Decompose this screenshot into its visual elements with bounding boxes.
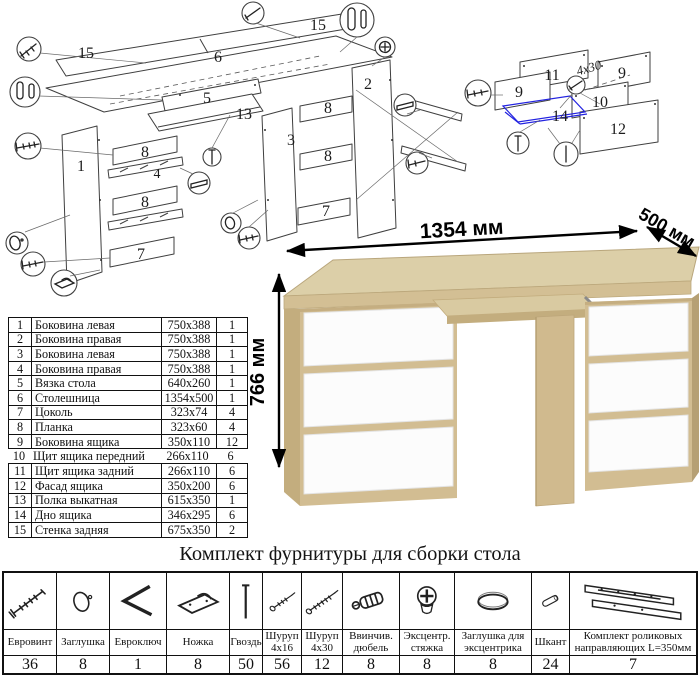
part-number-label: 4 xyxy=(154,167,161,182)
hw-icon-cell xyxy=(4,573,56,629)
hardware-kit-title: Комплект фурнитуры для сборки стола xyxy=(0,543,700,566)
right-pedestal-side xyxy=(692,293,699,482)
part-number-label: 12 xyxy=(610,121,626,138)
hw-icon-cell xyxy=(57,573,109,629)
part-name: Боковина левая xyxy=(31,347,161,361)
hw-qty: 8 xyxy=(167,656,229,673)
part-number-label: 9 xyxy=(515,84,523,101)
hw-qty: 1 xyxy=(110,656,166,673)
part-row: 10Щит ящика передний266x1106 xyxy=(8,449,248,463)
part-name: Боковина правая xyxy=(31,333,161,347)
hw-qty: 36 xyxy=(4,656,56,673)
part-num: 4 xyxy=(9,362,31,376)
part-name: Стенка задняя xyxy=(31,523,161,537)
hw-qty: 8 xyxy=(343,656,399,673)
nail-icon xyxy=(231,578,260,624)
part-row: 9Боковина ящика350x11012 xyxy=(9,434,247,449)
part-num: 13 xyxy=(9,494,31,508)
hw-name: Гвоздь xyxy=(230,629,262,656)
hw-icon-cell xyxy=(167,573,229,629)
hw-qty: 7 xyxy=(570,656,696,673)
hw-icon-cell xyxy=(110,573,166,629)
hw-icon-cell xyxy=(532,573,569,629)
hw-icon-cell xyxy=(230,573,262,629)
part-num: 12 xyxy=(9,479,31,493)
drawer-exploded-view: 11 9 9 10 12 14 4x30 xyxy=(465,50,658,166)
part-name: Боковина ящика xyxy=(31,435,161,449)
desk-body xyxy=(284,247,699,506)
part-number-label: 6 xyxy=(214,49,222,66)
hw-name: Ввинчив. дюбель xyxy=(343,629,399,656)
hw-name: Эксцентр. стяжка xyxy=(400,629,454,656)
center-post xyxy=(536,315,574,506)
hw-name: Ножка xyxy=(167,629,229,656)
part-size: 615x350 xyxy=(161,494,216,508)
part-number-label: 14 xyxy=(552,108,568,125)
hw-icon-cell xyxy=(263,573,301,629)
part-row: 2Боковина правая750x3881 xyxy=(9,332,247,347)
part-number-label: 3 xyxy=(287,132,295,149)
hw-qty: 8 xyxy=(57,656,109,673)
drawer-front xyxy=(589,303,688,356)
euroscrew-icon xyxy=(6,578,54,624)
part-number-label: 7 xyxy=(137,246,145,263)
dowel-screw-icon xyxy=(345,578,397,624)
hw-column: Гвоздь50 xyxy=(229,573,262,673)
hw-column: Шуруп 4x1656 xyxy=(262,573,301,673)
part-name: Щит ящика задний xyxy=(31,464,161,478)
part-number-label: 8 xyxy=(141,144,149,161)
part-qty: 1 xyxy=(216,347,247,361)
part-num: 10 xyxy=(8,449,30,463)
part-num: 9 xyxy=(9,435,31,449)
part-num: 8 xyxy=(9,420,31,434)
drawer-front xyxy=(304,367,453,427)
parts-table-upper: 1Боковина левая750x38812Боковина правая7… xyxy=(8,317,248,449)
hw-column: Евровинт36 xyxy=(4,573,56,673)
part-name: Столешница xyxy=(31,391,161,405)
part-qty: 6 xyxy=(216,508,247,522)
hw-column: Евроключ1 xyxy=(109,573,166,673)
part-number-label: 7 xyxy=(322,203,330,220)
part-name: Цоколь xyxy=(31,406,161,420)
part-row: 8Планка323x604 xyxy=(9,419,247,434)
part-size: 640x260 xyxy=(161,376,216,390)
part-row: 11Щит ящика задний266x1106 xyxy=(9,464,247,478)
part-num: 15 xyxy=(9,523,31,537)
part-num: 6 xyxy=(9,391,31,405)
hw-qty: 12 xyxy=(302,656,342,673)
hardware-kit-table: Евровинт36Заглушка8Евроключ1Ножка8Гвоздь… xyxy=(2,571,698,675)
part-num: 5 xyxy=(9,376,31,390)
part-name: Планка xyxy=(31,420,161,434)
cam-lock-icon xyxy=(402,578,452,624)
shkant-icon xyxy=(533,578,567,624)
part-num: 11 xyxy=(9,464,31,478)
hw-name: Евровинт xyxy=(4,629,56,656)
hw-name: Комплект роликовых направляющих L=350мм xyxy=(570,629,696,656)
part-number-label: 11 xyxy=(544,67,559,84)
dimension-height-label: 766 мм xyxy=(247,338,269,407)
hw-qty: 8 xyxy=(455,656,531,673)
part-qty: 4 xyxy=(216,406,247,420)
part-number-label: 15 xyxy=(310,17,326,34)
screw-long-icon xyxy=(304,578,341,624)
part-name: Боковина левая xyxy=(31,318,161,332)
parts-table-loose-row: 10Щит ящика передний266x1106 xyxy=(8,449,248,463)
part-size: 750x388 xyxy=(161,362,216,376)
part-size: 750x388 xyxy=(161,347,216,361)
drawer-front xyxy=(304,307,453,366)
hexkey-icon xyxy=(112,578,164,624)
part-row: 4Боковина правая750x3881 xyxy=(9,361,247,376)
hw-icon-cell xyxy=(570,573,696,629)
part-num: 2 xyxy=(9,333,31,347)
part-size: 1354x500 xyxy=(161,391,216,405)
hw-qty: 50 xyxy=(230,656,262,673)
hw-name: Евроключ xyxy=(110,629,166,656)
hw-icon-cell xyxy=(343,573,399,629)
part-name: Полка выкатная xyxy=(31,494,161,508)
rails-icon xyxy=(575,578,691,624)
part-number-label: 13 xyxy=(236,106,252,123)
part-size: 323x60 xyxy=(161,420,216,434)
part-name: Дно ящика xyxy=(31,508,161,522)
hw-column: Комплект роликовых направляющих L=350мм7 xyxy=(569,573,696,673)
part-number-label: 1 xyxy=(77,158,85,175)
part-number-label: 5 xyxy=(203,90,211,107)
part-qty: 1 xyxy=(216,391,247,405)
part-number-label: 10 xyxy=(592,94,608,111)
part-name: Фасад ящика xyxy=(31,479,161,493)
hw-column: Шкант24 xyxy=(531,573,569,673)
part-qty: 6 xyxy=(216,479,247,493)
part-number-label: 8 xyxy=(324,148,332,165)
part-qty: 12 xyxy=(216,435,247,449)
hw-name: Заглушка xyxy=(57,629,109,656)
part-num: 7 xyxy=(9,406,31,420)
hw-name: Шуруп 4x16 xyxy=(263,629,301,656)
hw-qty: 8 xyxy=(400,656,454,673)
part-qty: 2 xyxy=(216,523,247,537)
assembly-instruction-sheet: 15 6 15 1 8 4 8 7 5 13 3 2 8 8 7 xyxy=(0,0,700,677)
part-number-label: 8 xyxy=(324,100,332,117)
part-row: 7Цоколь323x744 xyxy=(9,405,247,420)
part-qty: 6 xyxy=(216,464,247,478)
drawer-front xyxy=(589,415,688,472)
hw-icon-cell xyxy=(455,573,531,629)
part-num: 14 xyxy=(9,508,31,522)
part-qty: 1 xyxy=(216,333,247,347)
desk-render: 1354 мм 500 мм 766 мм xyxy=(248,220,700,550)
hw-column: Шуруп 4x3012 xyxy=(301,573,342,673)
part-size: 750x388 xyxy=(161,318,216,332)
part-number-label: 8 xyxy=(141,194,149,211)
screw-short-icon xyxy=(265,578,300,624)
part-qty: 1 xyxy=(216,376,247,390)
cam-cap-icon xyxy=(458,578,528,624)
hw-column: Ножка8 xyxy=(166,573,229,673)
part-row: 13Полка выкатная615x3501 xyxy=(9,493,247,508)
parts-table-lower: 11Щит ящика задний266x110612Фасад ящика3… xyxy=(8,463,248,538)
part-row: 3Боковина левая750x3881 xyxy=(9,346,247,361)
hw-column: Ввинчив. дюбель8 xyxy=(342,573,399,673)
hw-column: Заглушка8 xyxy=(56,573,109,673)
part-name: Щит ящика передний xyxy=(30,449,160,463)
part-size: 346x295 xyxy=(161,508,216,522)
part-number-label: 2 xyxy=(364,76,372,93)
part-row: 12Фасад ящика350x2006 xyxy=(9,478,247,493)
part-qty: 1 xyxy=(216,318,247,332)
part-qty: 4 xyxy=(216,420,247,434)
part-size: 675x350 xyxy=(161,523,216,537)
hw-name: Заглушка для эксцентрика xyxy=(455,629,531,656)
drawer-front xyxy=(304,427,453,494)
part-number-label: 9 xyxy=(618,65,626,82)
hw-column: Эксцентр. стяжка8 xyxy=(399,573,454,673)
parts-list-table: 1Боковина левая750x38812Боковина правая7… xyxy=(8,317,248,538)
drawer-front xyxy=(589,359,688,413)
part-size: 750x388 xyxy=(161,333,216,347)
part-num: 3 xyxy=(9,347,31,361)
part-size: 266x110 xyxy=(161,464,216,478)
hw-name: Шкант xyxy=(532,629,569,656)
part-size: 350x200 xyxy=(161,479,216,493)
part-number-label: 15 xyxy=(78,45,94,62)
part-qty: 1 xyxy=(216,362,247,376)
left-pedestal-side xyxy=(284,309,300,506)
hw-icon-cell xyxy=(400,573,454,629)
foot-icon xyxy=(169,578,226,624)
hw-column: Заглушка для эксцентрика8 xyxy=(454,573,531,673)
part-size: 266x110 xyxy=(160,449,215,463)
part-num: 1 xyxy=(9,318,31,332)
part-name: Вязка стола xyxy=(31,376,161,390)
part-row: 14Дно ящика346x2956 xyxy=(9,507,247,522)
part-size: 350x110 xyxy=(161,435,216,449)
dimension-width-label: 1354 мм xyxy=(419,216,504,244)
right-side-panel xyxy=(352,60,396,238)
hw-icon-cell xyxy=(302,573,342,629)
part-qty: 1 xyxy=(216,494,247,508)
part-row: 6Столешница1354x5001 xyxy=(9,390,247,405)
hw-qty: 56 xyxy=(263,656,301,673)
hw-qty: 24 xyxy=(532,656,569,673)
part-row: 1Боковина левая750x3881 xyxy=(9,318,247,332)
part-qty: 6 xyxy=(215,449,246,463)
part-row: 5Вязка стола640x2601 xyxy=(9,375,247,390)
part-name: Боковина правая xyxy=(31,362,161,376)
cap-icon xyxy=(59,578,107,624)
part-row: 15Стенка задняя675x3502 xyxy=(9,522,247,537)
hw-name: Шуруп 4x30 xyxy=(302,629,342,656)
part-size: 323x74 xyxy=(161,406,216,420)
